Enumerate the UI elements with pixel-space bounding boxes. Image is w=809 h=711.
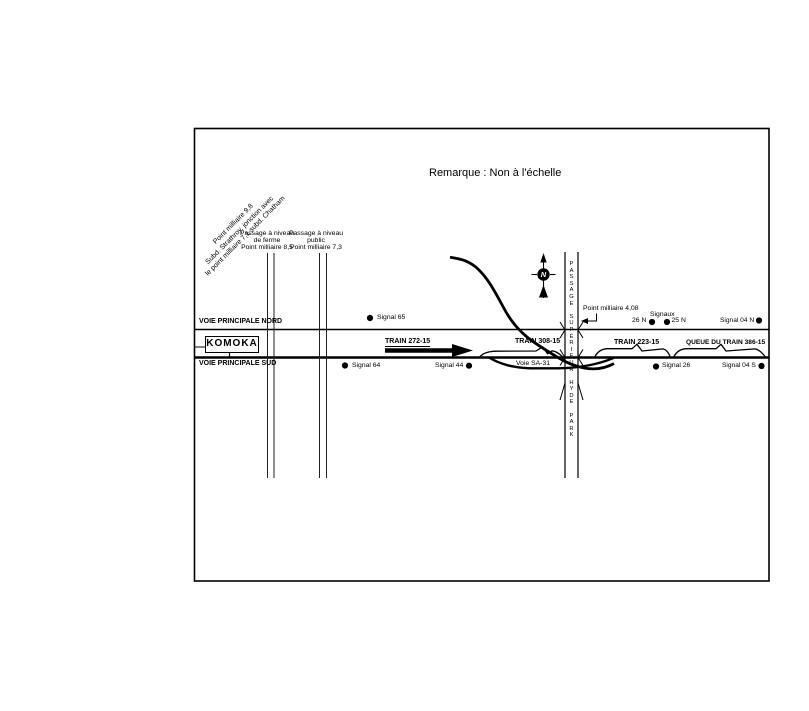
public-crossing-line1: Passage à niveau <box>276 230 356 237</box>
signal-44-label: Signal 44 <box>435 362 463 369</box>
train-308-profile <box>480 347 563 357</box>
signal-26-dot <box>653 363 659 369</box>
signal-26n-dot <box>649 319 655 325</box>
public-crossing-line3: Point milliaire 7,3 <box>276 244 356 251</box>
overpass-vertical-label: P A S S A G E S U P É R I E U R H Y D E … <box>565 261 578 439</box>
train-386-tail-label: QUEUE DU TRAIN 386-15 <box>686 339 765 346</box>
train-223-label: TRAIN 223-15 <box>614 339 659 347</box>
train-272-arrow-head <box>452 344 473 357</box>
komoka-station-label: KOMOKA <box>206 338 258 349</box>
diagram-graphics <box>0 0 809 711</box>
signal-65-label: Signal 65 <box>377 314 405 321</box>
signal-26n-label: 26 N <box>632 317 646 324</box>
signal-26-label: Signal 26 <box>662 362 690 369</box>
train-308-label: TRAIN 308-15 <box>515 338 560 346</box>
signal-64-label: Signal 64 <box>352 362 380 369</box>
signal-04s-label: Signal 04 S <box>722 362 756 369</box>
mile-408-label: Point milliaire 4,08 <box>583 305 639 312</box>
compass-bottom-arrowhead <box>539 285 548 298</box>
compass-north-letter: N <box>537 269 550 280</box>
compass-top-arrowhead <box>540 253 546 263</box>
signal-04s-dot <box>758 363 764 369</box>
komoka-station-box: KOMOKA <box>205 336 259 353</box>
siding-sa31-label: Voie SA-31 <box>516 360 550 367</box>
signal-25n-dot <box>664 319 670 325</box>
not-to-scale-note: Remarque : Non à l'échelle <box>429 167 561 179</box>
train-272-label: TRAIN 272-15 <box>385 338 430 348</box>
signal-44-dot <box>466 363 472 369</box>
public-crossing-label: Passage à niveau public Point milliaire … <box>276 230 356 251</box>
siding-sa31-track <box>489 358 614 369</box>
signal-65-dot <box>367 315 373 321</box>
south-track-label: VOIE PRINCIPALE SUD <box>199 360 276 368</box>
signal-64-dot <box>342 362 348 368</box>
north-track-label: VOIE PRINCIPALE NORD <box>199 318 282 326</box>
signal-04n-label: Signal 04 N <box>720 317 754 324</box>
diagram-canvas: Remarque : Non à l'échelle Point milliai… <box>0 0 809 711</box>
signal-04n-dot <box>756 317 762 323</box>
public-crossing-line2: public <box>276 237 356 244</box>
signal-25n-label: 25 N <box>672 317 686 324</box>
